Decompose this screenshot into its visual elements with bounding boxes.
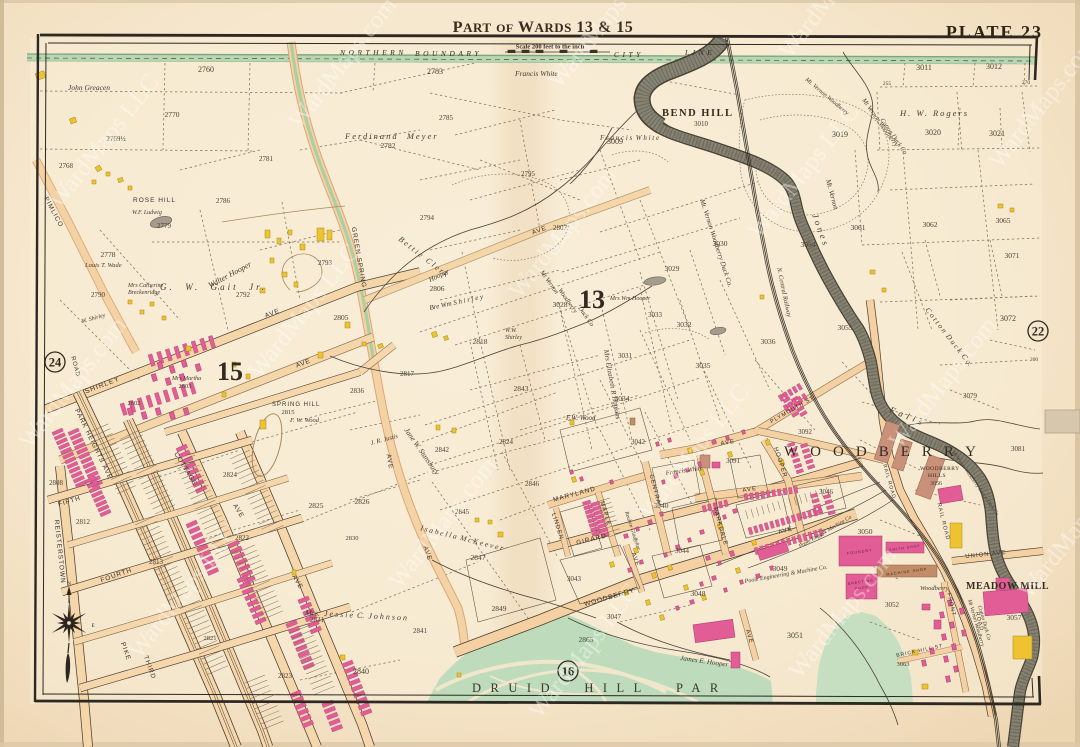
svg-text:2840: 2840 (353, 667, 369, 676)
svg-text:22: 22 (1032, 325, 1045, 339)
svg-text:2803: 2803 (179, 383, 192, 390)
svg-text:2841: 2841 (413, 627, 428, 635)
svg-text:2849: 2849 (492, 604, 507, 613)
svg-text:BEND HILL: BEND HILL (662, 108, 734, 119)
svg-text:BOUNDARY: BOUNDARY (415, 49, 482, 58)
svg-text:3020: 3020 (925, 128, 941, 137)
svg-text:PLATE 23: PLATE 23 (946, 22, 1043, 42)
svg-text:3071: 3071 (1005, 251, 1020, 260)
svg-text:2824: 2824 (223, 471, 238, 479)
svg-text:2836: 2836 (350, 387, 365, 395)
svg-text:3063: 3063 (897, 661, 910, 668)
svg-text:2786: 2786 (216, 197, 231, 205)
svg-text:3079: 3079 (963, 392, 978, 400)
svg-text:W.W.: W.W. (505, 328, 517, 334)
svg-text:W.F. Ludwig: W.F. Ludwig (132, 210, 162, 216)
svg-text:3042: 3042 (631, 438, 646, 446)
svg-text:LINE: LINE (684, 48, 715, 57)
svg-text:2794: 2794 (420, 214, 435, 222)
svg-text:F. W. Wood: F. W. Wood (289, 417, 320, 424)
svg-text:HILLS: HILLS (928, 473, 946, 479)
svg-text:H. W. Rogers: H. W. Rogers (899, 108, 969, 118)
svg-text:Ferdinand Meyer: Ferdinand Meyer (344, 131, 439, 141)
svg-text:N: N (67, 582, 71, 587)
svg-text:2760: 2760 (198, 65, 214, 74)
svg-text:3034: 3034 (615, 394, 630, 403)
svg-text:Mrs Martha: Mrs Martha (171, 376, 201, 382)
svg-text:2782: 2782 (381, 141, 396, 150)
svg-text:200: 200 (1030, 357, 1039, 363)
svg-text:3043: 3043 (567, 575, 582, 583)
svg-text:2795: 2795 (521, 170, 536, 178)
svg-text:3052: 3052 (885, 601, 900, 609)
svg-text:2785: 2785 (439, 114, 454, 122)
svg-text:2805: 2805 (334, 313, 349, 322)
svg-text:2813: 2813 (149, 558, 164, 566)
svg-text:DRUID HILL PAR: DRUID HILL PAR (472, 681, 728, 695)
svg-text:2825: 2825 (309, 501, 324, 510)
svg-text:2817: 2817 (400, 370, 415, 378)
svg-text:3033: 3033 (648, 311, 663, 319)
svg-text:Louis T. Wade: Louis T. Wade (84, 262, 122, 269)
svg-text:255: 255 (883, 81, 892, 87)
svg-text:2826: 2826 (355, 497, 370, 506)
svg-text:CITY: CITY (614, 50, 644, 59)
svg-text:3031: 3031 (618, 352, 633, 360)
svg-text:2823: 2823 (278, 672, 293, 680)
svg-text:3092: 3092 (798, 428, 813, 436)
svg-text:3051: 3051 (787, 631, 803, 640)
svg-text:2792: 2792 (236, 291, 251, 299)
svg-text:2831: 2831 (310, 616, 325, 624)
svg-text:F.W. Wood: F.W. Wood (565, 414, 596, 422)
svg-text:3032: 3032 (677, 320, 692, 329)
svg-text:ROSE HILL: ROSE HILL (133, 197, 176, 204)
svg-text:3046: 3046 (819, 488, 834, 496)
svg-text:E: E (91, 624, 94, 629)
svg-text:2846: 2846 (525, 480, 540, 488)
svg-text:24: 24 (49, 356, 62, 370)
svg-text:2812: 2812 (76, 518, 91, 526)
svg-text:3030: 3030 (713, 239, 728, 248)
svg-text:3054: 3054 (801, 240, 816, 249)
svg-text:Shirley: Shirley (505, 335, 522, 341)
svg-text:3091: 3091 (726, 457, 741, 465)
svg-text:3028: 3028 (553, 300, 568, 309)
svg-text:3065: 3065 (996, 216, 1011, 225)
svg-text:SPRING HILL: SPRING HILL (272, 402, 320, 408)
svg-text:2779: 2779 (157, 222, 172, 230)
svg-text:15: 15 (217, 357, 243, 386)
svg-text:3081: 3081 (1011, 445, 1026, 453)
svg-text:3012: 3012 (986, 62, 1002, 71)
svg-text:WOODBERRY: WOODBERRY (920, 466, 960, 472)
svg-text:Woodberry: Woodberry (920, 585, 949, 592)
svg-text:3061: 3061 (851, 223, 866, 232)
svg-text:3035: 3035 (696, 361, 711, 370)
svg-text:2821: 2821 (204, 635, 217, 642)
svg-text:Mrs Wm Hooper: Mrs Wm Hooper (609, 296, 651, 302)
svg-text:3029: 3029 (665, 264, 680, 273)
svg-text:2770: 2770 (165, 110, 180, 119)
svg-text:2808: 2808 (49, 479, 64, 487)
svg-text:3072: 3072 (1000, 314, 1016, 323)
svg-text:2778: 2778 (101, 250, 116, 259)
svg-text:Mrs Catherine: Mrs Catherine (127, 283, 164, 289)
svg-text:John Greacen: John Greacen (68, 83, 110, 92)
svg-text:3056: 3056 (930, 481, 942, 487)
svg-text:2842: 2842 (435, 446, 450, 454)
svg-text:WOODBERRY: WOODBERRY (784, 444, 976, 460)
svg-text:2830: 2830 (346, 535, 359, 542)
svg-text:3050: 3050 (858, 527, 873, 536)
svg-text:2802: 2802 (128, 400, 141, 407)
svg-text:2824: 2824 (499, 438, 514, 446)
svg-text:270: 270 (1022, 80, 1031, 86)
svg-text:Breckenridge: Breckenridge (128, 290, 160, 296)
svg-text:2843: 2843 (514, 384, 529, 393)
svg-text:3049: 3049 (773, 564, 788, 573)
svg-text:3009: 3009 (607, 137, 623, 146)
svg-text:3044: 3044 (675, 547, 690, 555)
svg-text:3036: 3036 (761, 337, 776, 346)
svg-text:2781: 2781 (259, 155, 274, 163)
svg-text:2790: 2790 (91, 291, 106, 299)
svg-text:3055: 3055 (838, 323, 853, 332)
svg-text:3062: 3062 (923, 220, 938, 229)
svg-text:2783: 2783 (427, 67, 443, 76)
svg-text:3057: 3057 (1007, 613, 1022, 622)
svg-text:2815: 2815 (282, 409, 295, 416)
svg-text:2847: 2847 (471, 553, 486, 562)
svg-text:2818: 2818 (473, 337, 488, 346)
svg-text:3011: 3011 (916, 63, 932, 72)
svg-text:2806: 2806 (430, 284, 445, 293)
svg-text:3048: 3048 (691, 589, 706, 598)
svg-text:3010: 3010 (694, 120, 709, 128)
